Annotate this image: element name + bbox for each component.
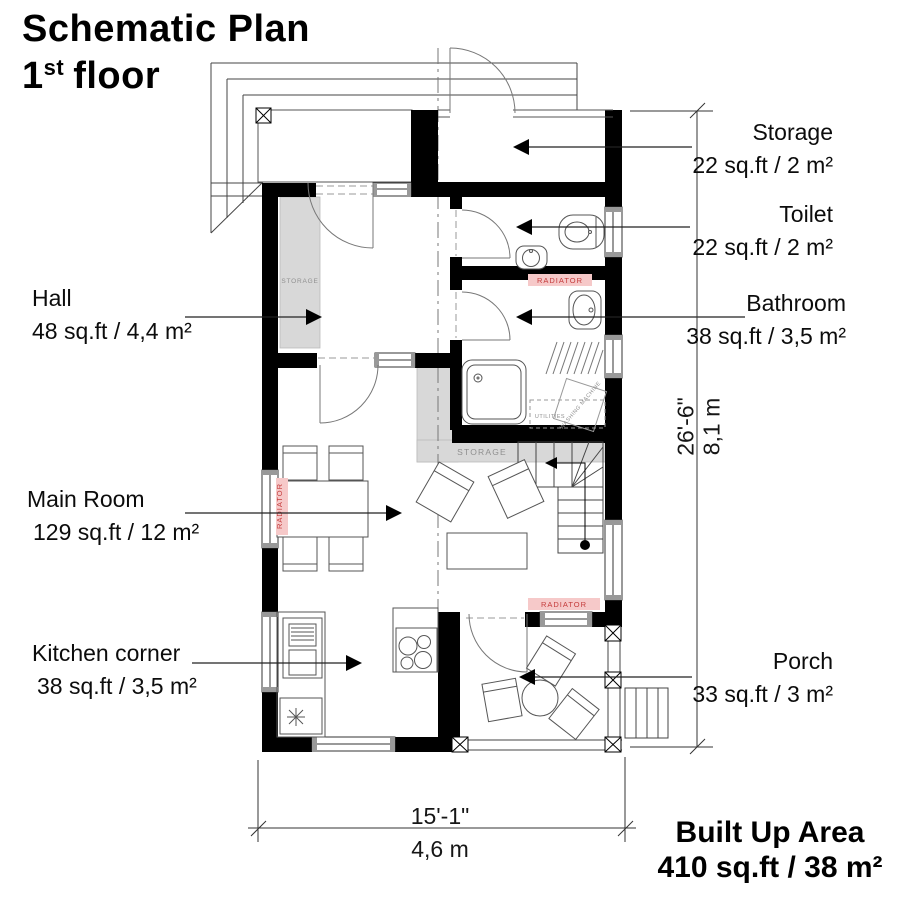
floor-plan-page: RADIATOR RADIATOR RADIATOR STORAGE STORA…: [0, 0, 900, 900]
bathroom-area: 38 sq.ft / 3,5 m²: [686, 320, 846, 353]
kitchen-area: 38 sq.ft / 3,5 m²: [37, 670, 197, 703]
built-up-area: Built Up Area 410 sq.ft / 38 m²: [620, 815, 900, 885]
storage-area: 22 sq.ft / 2 m²: [692, 149, 833, 182]
understairs-storage-text: STORAGE: [457, 447, 507, 457]
horizontal-dimension-ft: 15'-1": [290, 803, 590, 830]
storage-name: Storage: [692, 116, 833, 149]
toilet-fixture: [559, 215, 604, 249]
floor-ordinal: st: [44, 55, 65, 80]
hall-area: 48 sq.ft / 4,4 m²: [32, 315, 192, 348]
kitchen-counter: [277, 612, 325, 737]
horizontal-dimension-m: 4,6 m: [290, 836, 590, 863]
built-up-area-label: Built Up Area: [620, 815, 900, 850]
storage-leader: [513, 139, 692, 155]
radiator-label-main-room: RADIATOR: [275, 483, 284, 529]
bathroom-label: Bathroom 38 sq.ft / 3,5 m²: [686, 287, 846, 353]
main-room-label: Main Room 129 sq.ft / 12 m²: [27, 483, 199, 549]
stove: [393, 608, 438, 672]
entry-terrace: [256, 108, 412, 182]
kitchen-name: Kitchen corner: [32, 637, 197, 670]
closet-storage-text: STORAGE: [281, 278, 318, 285]
hall-label: Hall 48 sq.ft / 4,4 m²: [32, 282, 192, 348]
kitchen-label: Kitchen corner 38 sq.ft / 3,5 m²: [32, 637, 197, 703]
coffee-table: [447, 533, 527, 569]
bathroom-sink: [569, 291, 601, 329]
main-room-area: 129 sq.ft / 12 m²: [33, 516, 199, 549]
toilet-name: Toilet: [692, 198, 833, 231]
vertical-dimension-ft: 26'-6": [673, 377, 700, 477]
title-line2: 1stfloor: [22, 53, 310, 104]
armchairs: [416, 460, 544, 522]
main-room-name: Main Room: [27, 483, 199, 516]
built-up-area-value: 410 sq.ft / 38 m²: [620, 850, 900, 885]
vertical-dimension-m: 8,1 m: [699, 377, 726, 477]
floor-word: floor: [73, 55, 160, 97]
porch-furniture: [482, 636, 599, 740]
porch-name: Porch: [692, 645, 833, 678]
radiator-label-porch: RADIATOR: [541, 600, 587, 609]
toilet-sink: [516, 246, 547, 269]
utilities-text: UTILITIES: [535, 414, 565, 420]
dining-set: [277, 446, 368, 571]
floor-number: 1: [22, 55, 44, 97]
towel-radiator: [546, 342, 603, 374]
toilet-label: Toilet 22 sq.ft / 2 m²: [692, 198, 833, 264]
shower: [462, 360, 526, 424]
storage-front-wall: [438, 110, 613, 117]
porch-area: 33 sq.ft / 3 m²: [692, 678, 833, 711]
page-title: Schematic Plan 1stfloor: [22, 6, 310, 104]
title-line1: Schematic Plan: [22, 6, 310, 53]
toilet-area: 22 sq.ft / 2 m²: [692, 231, 833, 264]
storage-label: Storage 22 sq.ft / 2 m²: [692, 116, 833, 182]
porch-label: Porch 33 sq.ft / 3 m²: [692, 645, 833, 711]
bathroom-name: Bathroom: [686, 287, 846, 320]
radiator-label-toilet: RADIATOR: [537, 276, 583, 285]
hall-name: Hall: [32, 282, 192, 315]
